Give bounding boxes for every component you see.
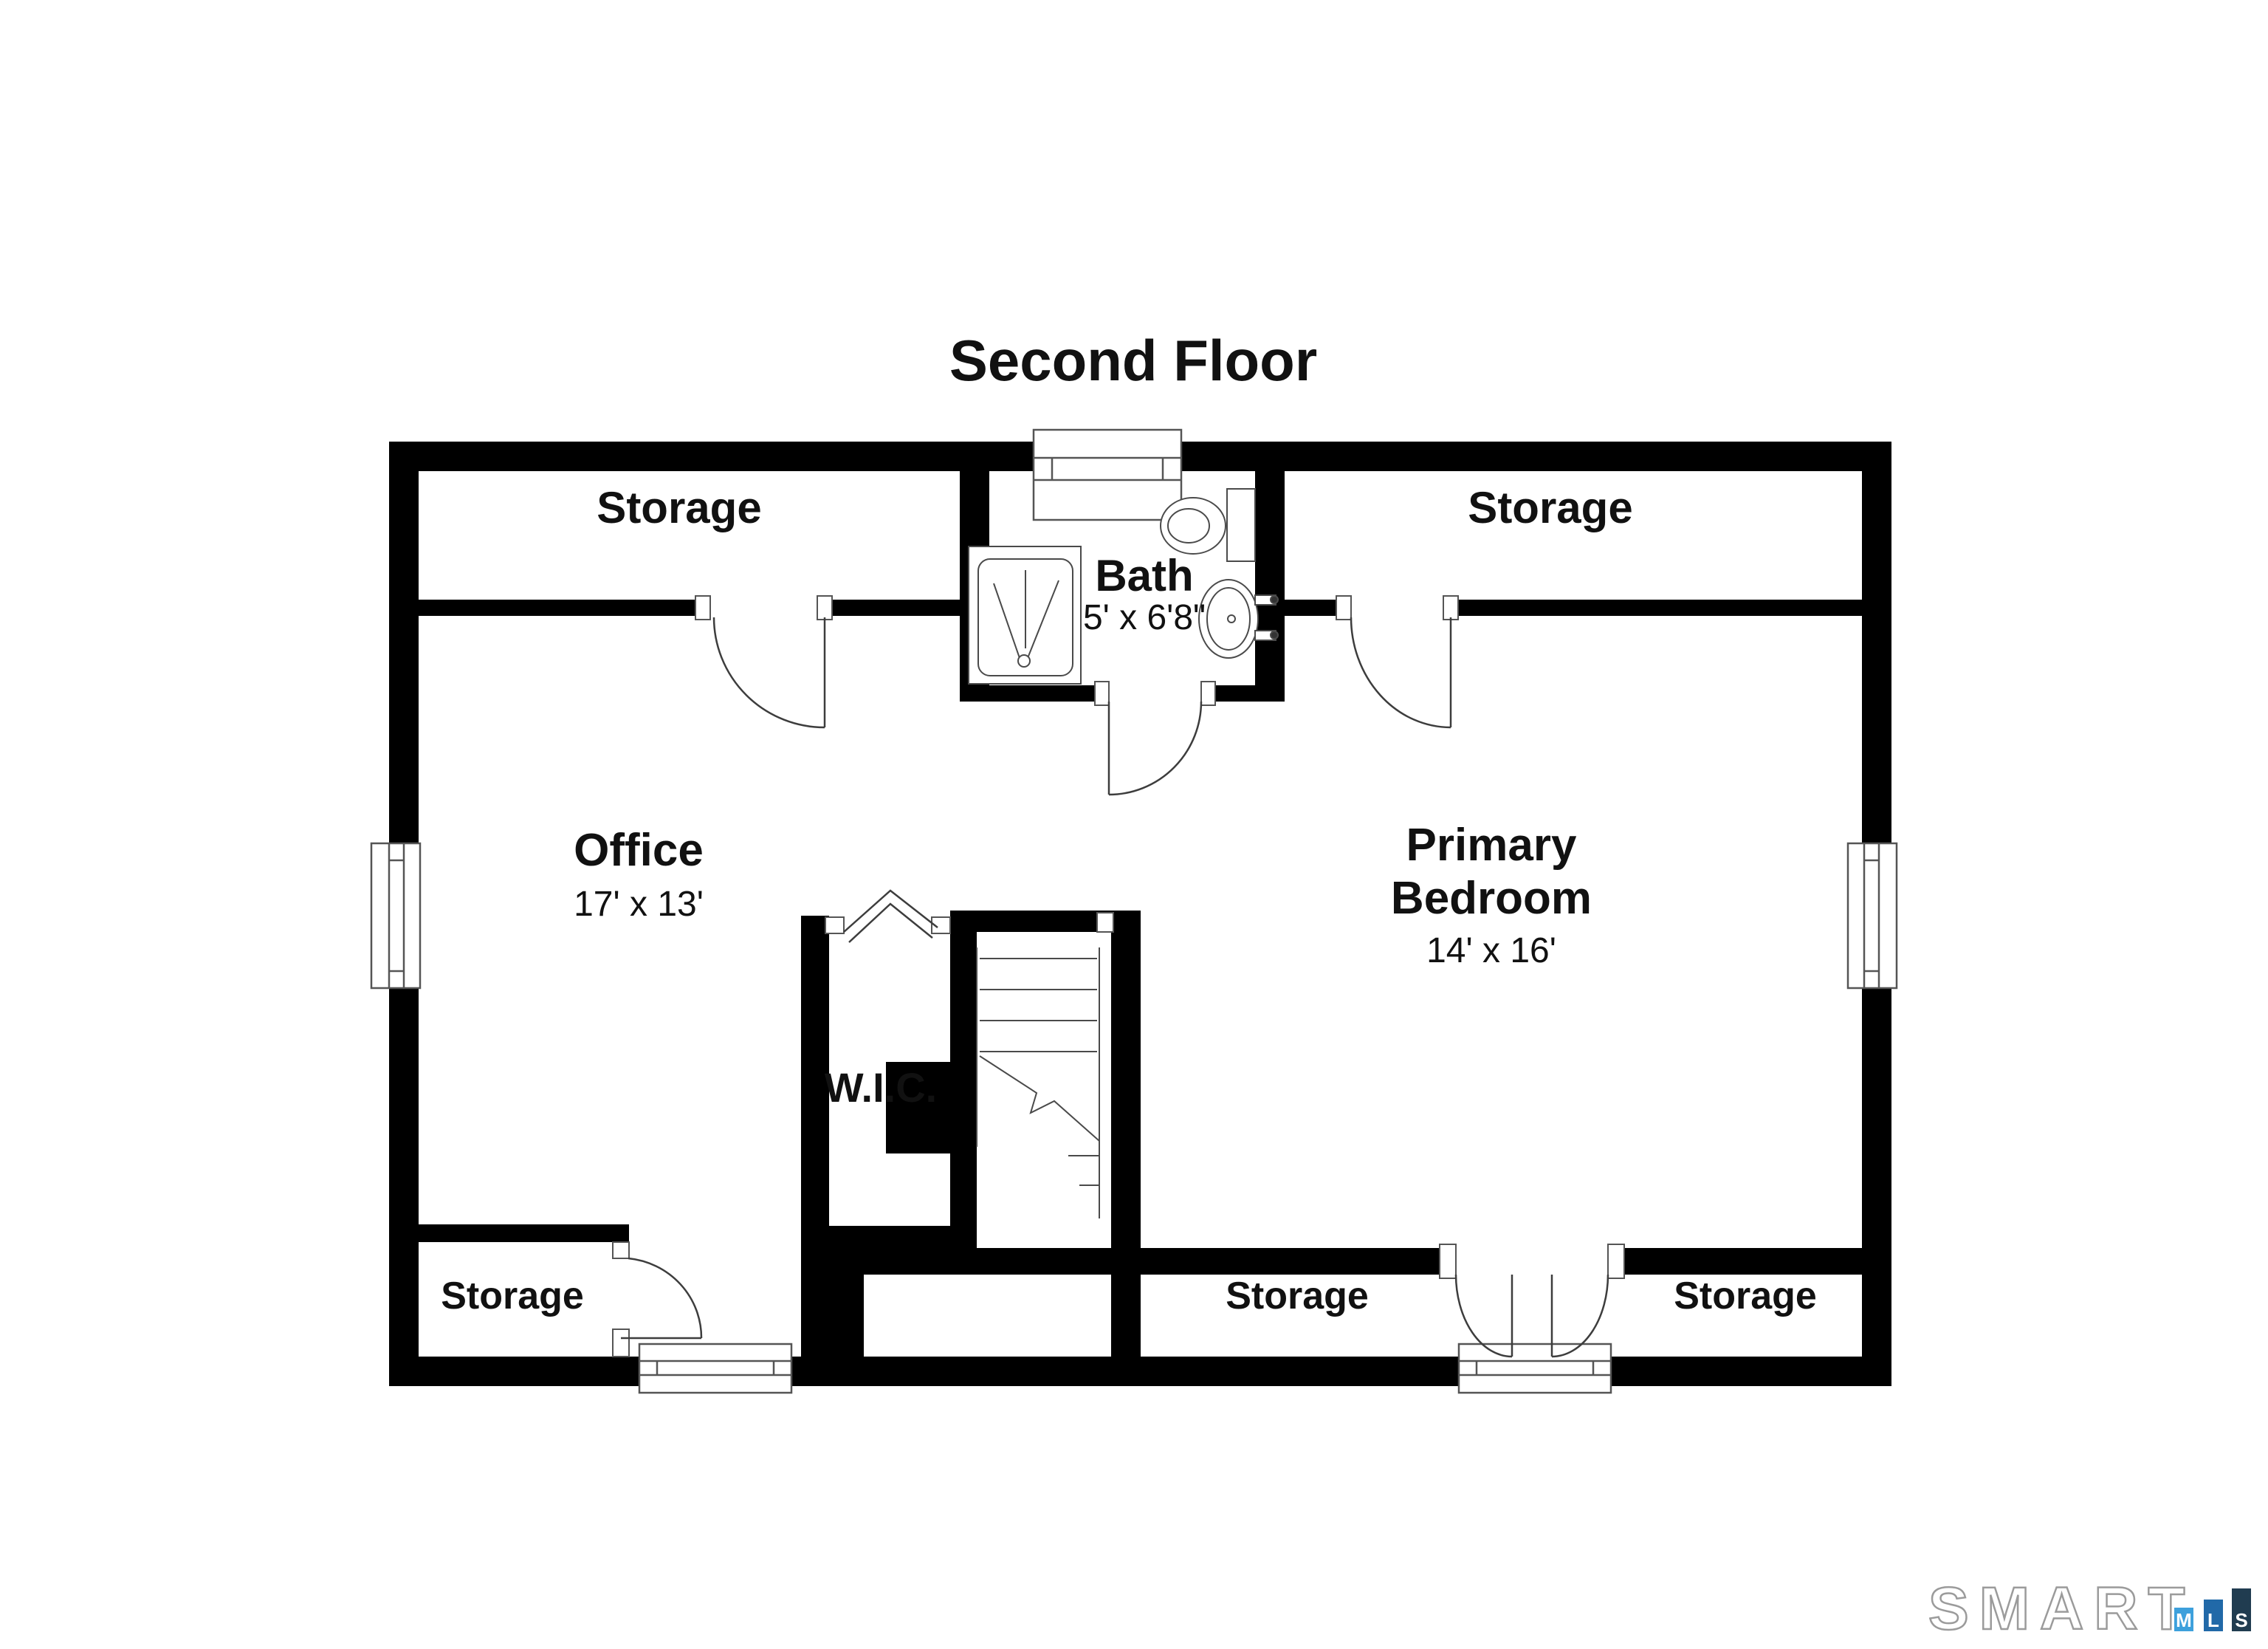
room-label-office: Office <box>574 825 704 876</box>
wall-stairs-left <box>950 911 977 1248</box>
wall-outer-right-lower <box>1862 988 1891 1386</box>
door-storage-top-left <box>714 617 825 727</box>
logo-letter-s: S <box>2235 1609 2247 1631</box>
room-label-bedroom: Bedroom <box>1391 873 1592 924</box>
room-label-storage-top-right: Storage <box>1468 483 1632 532</box>
room-label-primary: Primary <box>1406 820 1577 871</box>
smartmls-logo: SMART M L S <box>1928 1575 2251 1642</box>
room-label-bath: Bath <box>1095 551 1193 600</box>
window-left <box>371 843 420 988</box>
wall-divider-storage-bedroom-b <box>1458 600 1862 616</box>
jamb <box>1201 682 1215 705</box>
wall-stairs-right <box>1111 932 1141 1386</box>
window-right <box>1848 843 1897 988</box>
door-storage-bottom-left <box>621 1258 701 1338</box>
jamb <box>825 917 844 933</box>
room-label-storage-bottom-left: Storage <box>441 1275 584 1317</box>
wall-stub <box>829 1275 864 1357</box>
bifold-door-wic <box>844 891 938 942</box>
jamb <box>1095 682 1109 705</box>
room-label-storage-top-left: Storage <box>597 483 761 532</box>
room-label-storage-bottom-right: Storage <box>1674 1275 1817 1317</box>
logo-brand-text: SMART <box>1928 1575 2196 1642</box>
room-label-wic: W.I.C. <box>825 1064 937 1111</box>
room-dims-bath: 5' x 6'8" <box>1083 598 1206 637</box>
jamb <box>817 596 832 620</box>
stairs-break-line <box>980 1056 1099 1141</box>
wall-outer-bottom-right <box>1606 1357 1891 1386</box>
shower <box>969 546 1081 684</box>
jamb <box>1097 913 1113 932</box>
room-dims-bedroom: 14' x 16' <box>1426 931 1556 970</box>
floor-plan-page: Second Floor Storage Storage Bath 5' x 6… <box>0 0 2268 1649</box>
room-label-storage-bottom-middle: Storage <box>1226 1275 1369 1317</box>
toilet-tank <box>1227 489 1255 561</box>
wall-bath-bottom-a <box>960 685 1095 702</box>
wall-bath-right <box>1255 471 1285 702</box>
wall-outer-bottom-left <box>389 1357 648 1386</box>
wall-storage-bl-top <box>389 1224 629 1242</box>
wall-outer-left-upper <box>389 471 419 846</box>
jamb <box>613 1242 629 1258</box>
wall-outer-top-left <box>389 442 1039 471</box>
wall-divider-storage-bedroom-a <box>1285 600 1336 616</box>
jamb <box>1440 1244 1456 1278</box>
door-bath <box>1109 702 1201 795</box>
wall-wic-left <box>801 916 829 1357</box>
floor-plan: Second Floor Storage Storage Bath 5' x 6… <box>0 0 2268 1649</box>
shower-drain <box>1018 655 1030 667</box>
page-title: Second Floor <box>949 328 1317 393</box>
jamb <box>1336 596 1351 620</box>
wall-stairs-top <box>965 911 1141 932</box>
wall-outer-left-lower <box>389 988 419 1386</box>
window-bottom-left <box>639 1344 791 1393</box>
jamb <box>1443 596 1458 620</box>
jamb <box>1608 1244 1624 1278</box>
jamb <box>613 1329 629 1357</box>
jamb <box>695 596 710 620</box>
window-top <box>1034 430 1181 520</box>
room-dims-office: 17' x 13' <box>574 885 704 924</box>
stairs <box>977 947 1099 1218</box>
wall-outer-top-right <box>1176 442 1891 471</box>
wall-divider-storage-office-a <box>419 600 695 616</box>
logo-letter-m: M <box>2176 1609 2192 1631</box>
logo-letter-l: L <box>2207 1609 2219 1631</box>
wall-storage-br-top <box>1624 1248 1862 1275</box>
window-bottom-right <box>1459 1344 1611 1393</box>
wall-outer-right-upper <box>1862 471 1891 846</box>
door-primary-bedroom <box>1351 617 1451 727</box>
